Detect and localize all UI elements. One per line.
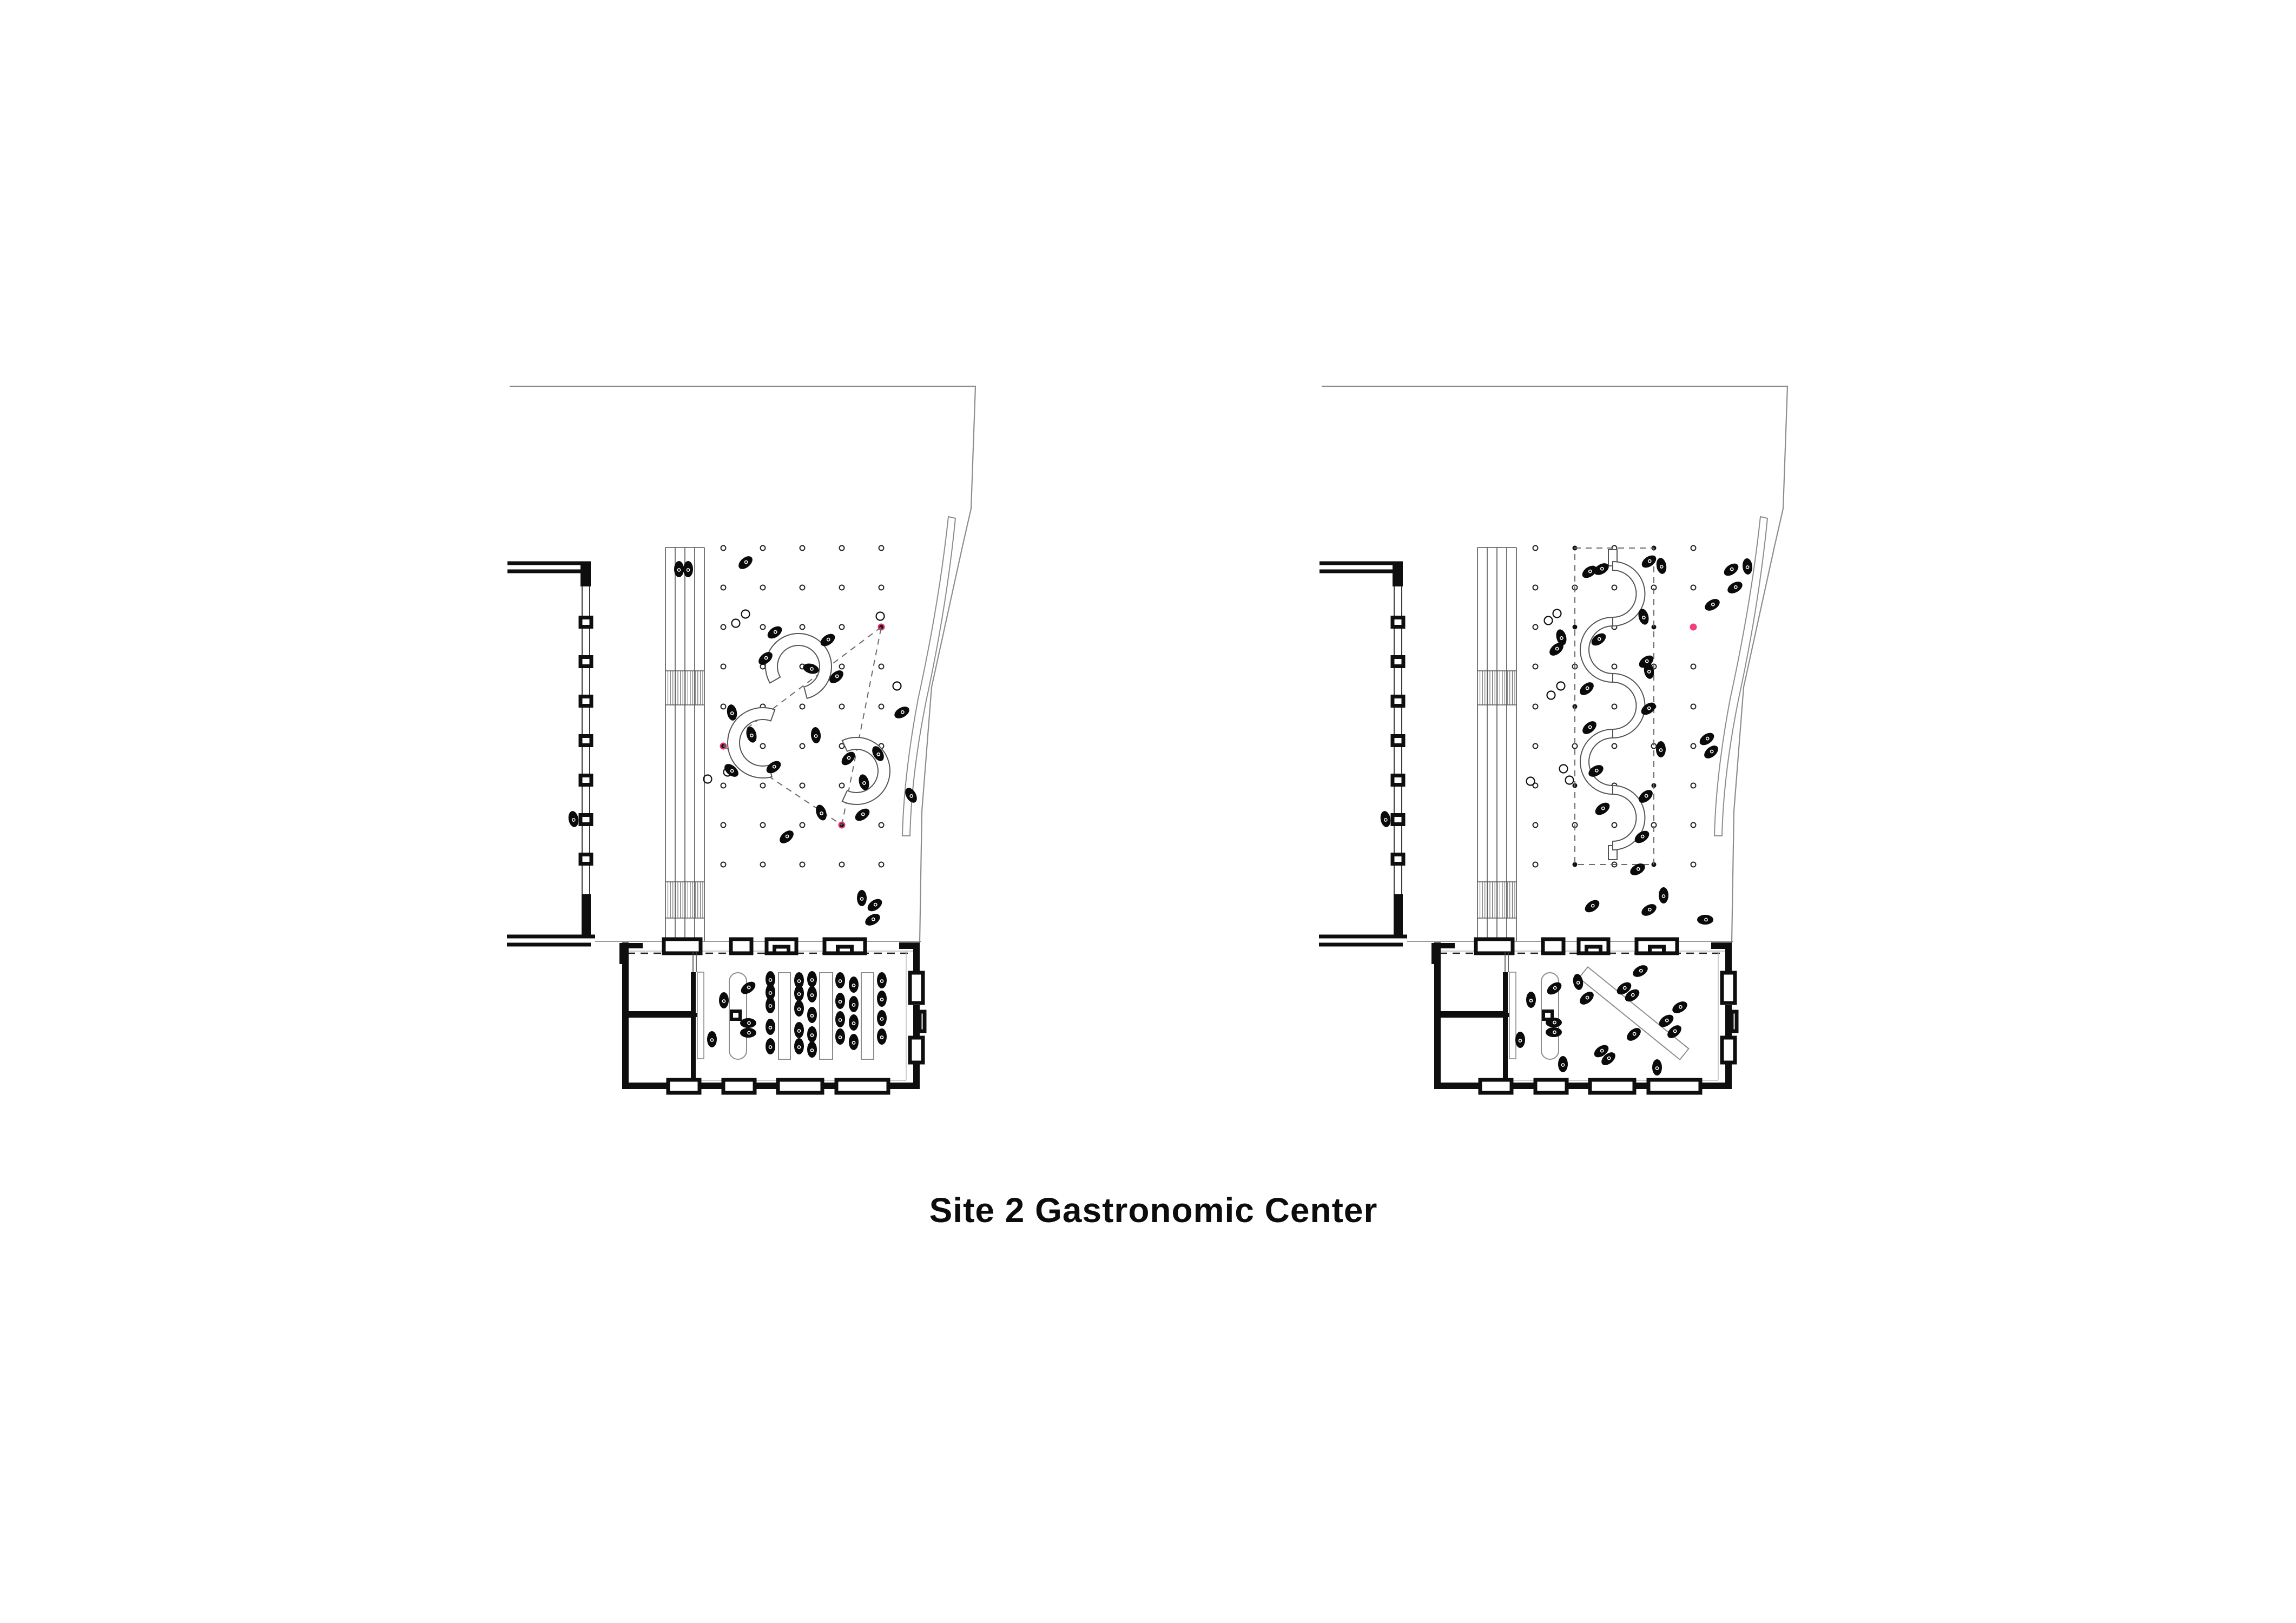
person-marker bbox=[719, 992, 729, 1008]
trees bbox=[1527, 610, 1574, 786]
person-marker bbox=[1698, 730, 1717, 748]
person-marker bbox=[877, 972, 887, 988]
person-marker bbox=[835, 1011, 845, 1027]
person-marker bbox=[1640, 902, 1659, 919]
person-marker bbox=[1703, 597, 1722, 613]
tree-circle bbox=[1545, 617, 1553, 625]
person-marker bbox=[857, 890, 867, 906]
person-marker bbox=[814, 803, 828, 822]
person-marker bbox=[853, 806, 872, 823]
person-marker bbox=[835, 972, 845, 988]
person-marker bbox=[1546, 1018, 1562, 1027]
person-marker bbox=[807, 986, 817, 1002]
person-marker bbox=[777, 828, 796, 846]
person-marker bbox=[1583, 898, 1602, 915]
people-plaza bbox=[1380, 553, 1753, 925]
person-marker bbox=[1656, 741, 1666, 757]
person-marker bbox=[1742, 558, 1753, 575]
person-marker bbox=[849, 1014, 859, 1031]
tree-circle bbox=[1527, 777, 1535, 786]
person-marker bbox=[1655, 557, 1668, 575]
gastronomic-center-building bbox=[1434, 939, 1737, 1093]
tree-circle bbox=[1560, 765, 1568, 773]
person-marker bbox=[766, 1019, 775, 1035]
plan-left bbox=[507, 386, 975, 1093]
person-marker bbox=[726, 704, 738, 722]
person-marker bbox=[794, 985, 804, 1001]
person-marker bbox=[674, 561, 684, 577]
person-marker bbox=[810, 727, 822, 743]
person-marker bbox=[802, 662, 820, 675]
person-marker bbox=[1546, 1027, 1562, 1037]
person-marker bbox=[849, 977, 859, 993]
site-plan-drawing bbox=[0, 0, 2296, 1623]
plaza-grid bbox=[1533, 546, 1697, 867]
person-marker bbox=[835, 1028, 845, 1045]
person-marker bbox=[744, 725, 758, 744]
person-marker bbox=[863, 912, 882, 928]
stair-ramp-band bbox=[665, 547, 704, 941]
person-marker bbox=[568, 810, 580, 828]
person-marker bbox=[1578, 679, 1596, 697]
tree-circle bbox=[732, 619, 740, 628]
tree-circle bbox=[876, 612, 885, 621]
person-marker bbox=[766, 997, 775, 1013]
tree-circle bbox=[1566, 776, 1574, 784]
person-marker bbox=[1722, 561, 1741, 578]
person-marker bbox=[707, 1031, 717, 1047]
footpath bbox=[1714, 517, 1767, 836]
tree-circle bbox=[1547, 691, 1555, 700]
person-marker bbox=[807, 1007, 817, 1023]
footpath bbox=[902, 517, 955, 836]
person-marker bbox=[1578, 989, 1596, 1007]
person-marker bbox=[740, 1018, 756, 1028]
person-marker bbox=[1726, 579, 1745, 596]
tree-circle bbox=[893, 682, 901, 690]
stair-ramp-band bbox=[1477, 547, 1516, 941]
person-marker bbox=[1558, 1056, 1568, 1072]
sheet-title: Site 2 Gastronomic Center bbox=[929, 1190, 1378, 1230]
drawing-sheet: Site 2 Gastronomic Center bbox=[0, 0, 2296, 1623]
person-marker bbox=[1659, 887, 1668, 903]
person-marker bbox=[849, 996, 859, 1012]
existing-building bbox=[507, 562, 595, 945]
person-marker bbox=[1640, 553, 1659, 570]
person-marker bbox=[877, 1010, 887, 1026]
person-marker bbox=[807, 1026, 817, 1043]
person-marker bbox=[736, 553, 755, 571]
person-marker bbox=[683, 561, 693, 577]
accent-marker bbox=[1690, 624, 1697, 631]
existing-building bbox=[1319, 562, 1407, 945]
person-marker bbox=[1652, 1059, 1662, 1076]
person-marker bbox=[740, 1028, 756, 1038]
tree-circle bbox=[1553, 610, 1561, 618]
person-marker bbox=[1697, 915, 1713, 925]
person-marker bbox=[877, 991, 887, 1007]
person-marker bbox=[1380, 810, 1392, 828]
tables bbox=[1541, 967, 1688, 1059]
person-marker bbox=[1631, 963, 1650, 980]
person-marker bbox=[849, 1034, 859, 1050]
person-marker bbox=[893, 704, 912, 721]
person-marker bbox=[794, 1000, 804, 1017]
person-marker bbox=[1515, 1032, 1525, 1048]
person-marker bbox=[1702, 743, 1721, 761]
person-marker bbox=[1593, 800, 1612, 817]
person-marker bbox=[794, 1038, 804, 1054]
person-marker bbox=[1671, 999, 1690, 1016]
person-marker bbox=[807, 1041, 817, 1058]
person-marker bbox=[1526, 992, 1536, 1008]
person-marker bbox=[766, 1038, 775, 1054]
tree-circle bbox=[742, 610, 750, 618]
person-marker bbox=[835, 993, 845, 1009]
person-marker bbox=[1628, 861, 1647, 878]
person-marker bbox=[866, 896, 885, 914]
plan-right bbox=[1319, 386, 1787, 1093]
tree-circle bbox=[1557, 682, 1565, 690]
person-marker bbox=[807, 971, 817, 987]
person-marker bbox=[794, 1022, 804, 1038]
person-marker bbox=[877, 1028, 887, 1045]
